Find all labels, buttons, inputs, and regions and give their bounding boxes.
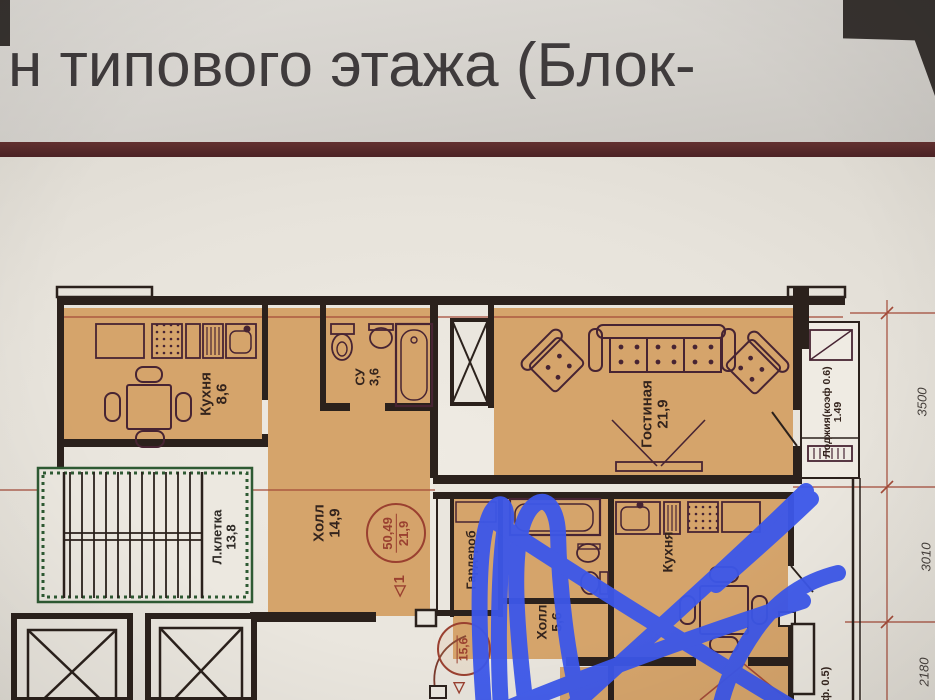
- room-label-stairwell: Л.клетка 13,8: [210, 510, 237, 565]
- dimension-3500: 3500: [915, 388, 930, 417]
- room-label-loggia-2: ф. 0.5): [821, 667, 833, 700]
- room-label-loggia-1: Лоджия(коэф 0.6) 1.49: [822, 366, 844, 457]
- unit-marker-apt2: ◁: [449, 680, 467, 694]
- room-label-hall-2: Холл 5,6: [534, 604, 563, 639]
- floor-plan-photo: н типового этажа (Блок-: [0, 0, 935, 700]
- floor-plan-drawing: [0, 0, 935, 700]
- area-stamp-apt2: 15,6: [437, 622, 491, 676]
- room-label-wc-1: СУ 3,6: [353, 368, 380, 386]
- room-label-kitchen-1: Кухня 8,6: [198, 372, 230, 416]
- dimension-3010: 3010: [919, 543, 934, 572]
- dimension-2180: 2180: [917, 658, 932, 687]
- vent-shaft: [452, 320, 488, 404]
- room-label-kitchen-2: Кухня: [661, 532, 676, 573]
- room-label-hall-1: Холл 14,9: [311, 504, 343, 542]
- area-stamp-apt1: 50,49 21,9: [366, 503, 426, 563]
- elevator-shafts: [14, 616, 254, 700]
- room-label-wardrobe-2: Гардероб: [465, 530, 478, 589]
- unit-marker-apt1: ◁ 1: [390, 575, 408, 597]
- room-label-living-1: Гостиная 21,9: [639, 380, 671, 448]
